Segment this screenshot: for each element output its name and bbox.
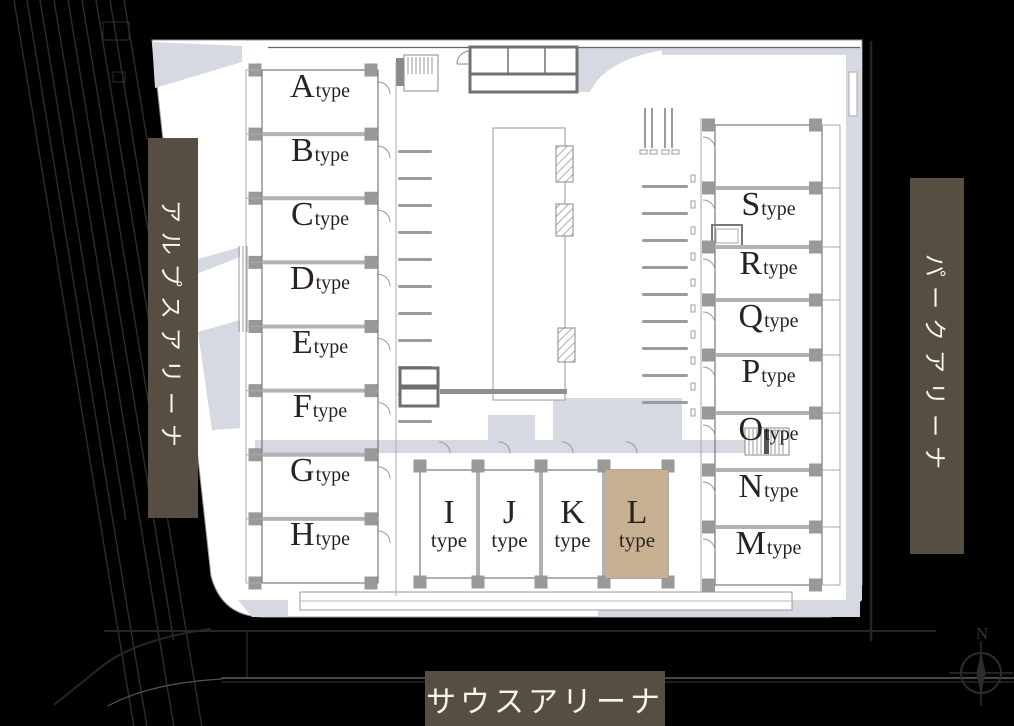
- unit-D[interactable]: Dtype: [262, 262, 378, 326]
- exterior-stairs: [396, 55, 438, 91]
- entry-steps: [300, 592, 792, 610]
- unit-I[interactable]: Itype: [420, 470, 478, 578]
- banner-alps-arena: アルプスアリーナ: [148, 138, 198, 518]
- canopy: [457, 47, 577, 92]
- unit-Q[interactable]: Qtype: [715, 300, 822, 355]
- unit-M[interactable]: Mtype: [715, 527, 822, 585]
- unit-H[interactable]: Htype: [262, 518, 378, 583]
- unit-C[interactable]: Ctype: [262, 198, 378, 262]
- unit-N[interactable]: Ntype: [715, 470, 822, 527]
- unit-O[interactable]: Otype: [715, 413, 822, 470]
- unit-P[interactable]: Ptype: [715, 355, 822, 413]
- court-garden: [493, 128, 565, 400]
- unit-J[interactable]: Jtype: [478, 470, 541, 578]
- site-plan-page: Atype Btype Ctype Dtype Etype Ftype Gtyp…: [0, 0, 1014, 726]
- unit-S[interactable]: Stype: [715, 188, 822, 247]
- unit-L-highlighted[interactable]: Ltype: [606, 470, 668, 578]
- unit-G[interactable]: Gtype: [262, 454, 378, 518]
- compass-icon: [949, 641, 1013, 706]
- unit-R[interactable]: Rtype: [715, 247, 822, 300]
- unit-B[interactable]: Btype: [262, 134, 378, 198]
- unit-F[interactable]: Ftype: [262, 390, 378, 454]
- unit-E[interactable]: Etype: [262, 326, 378, 390]
- ramp: [849, 72, 857, 116]
- banner-park-arena: パークアリーナ: [910, 178, 964, 554]
- unit-K[interactable]: Ktype: [541, 470, 604, 578]
- banner-south-arena: サウスアリーナ: [425, 671, 665, 726]
- unit-A[interactable]: Atype: [262, 70, 378, 134]
- compass-north-label: N: [970, 624, 994, 644]
